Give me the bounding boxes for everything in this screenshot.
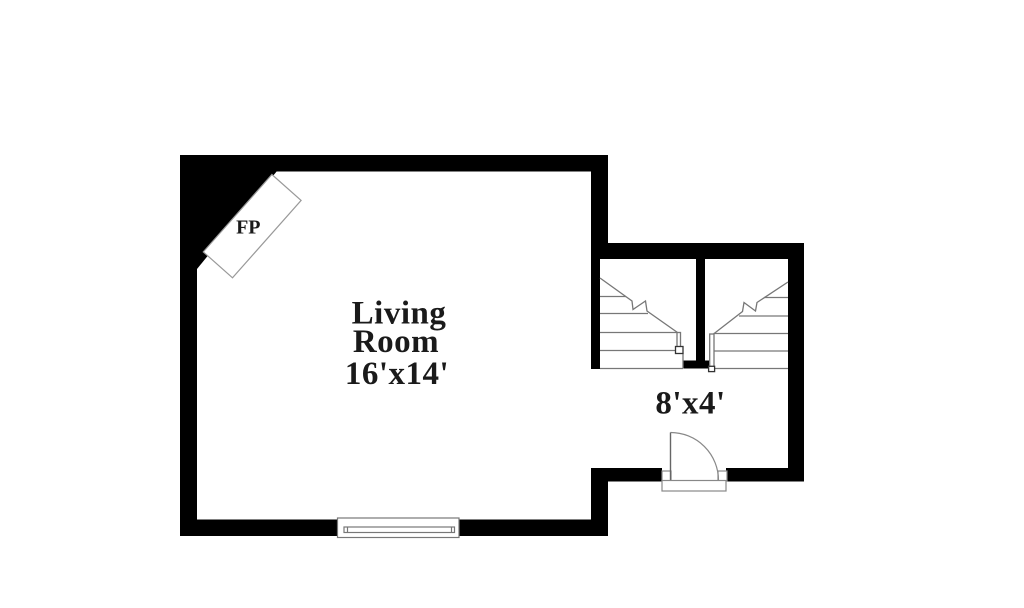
svg-text:FP: FP (236, 217, 260, 239)
svg-text:16'x14': 16'x14' (345, 356, 449, 392)
svg-text:8'x4': 8'x4' (655, 385, 725, 421)
svg-text:Room: Room (353, 324, 439, 360)
